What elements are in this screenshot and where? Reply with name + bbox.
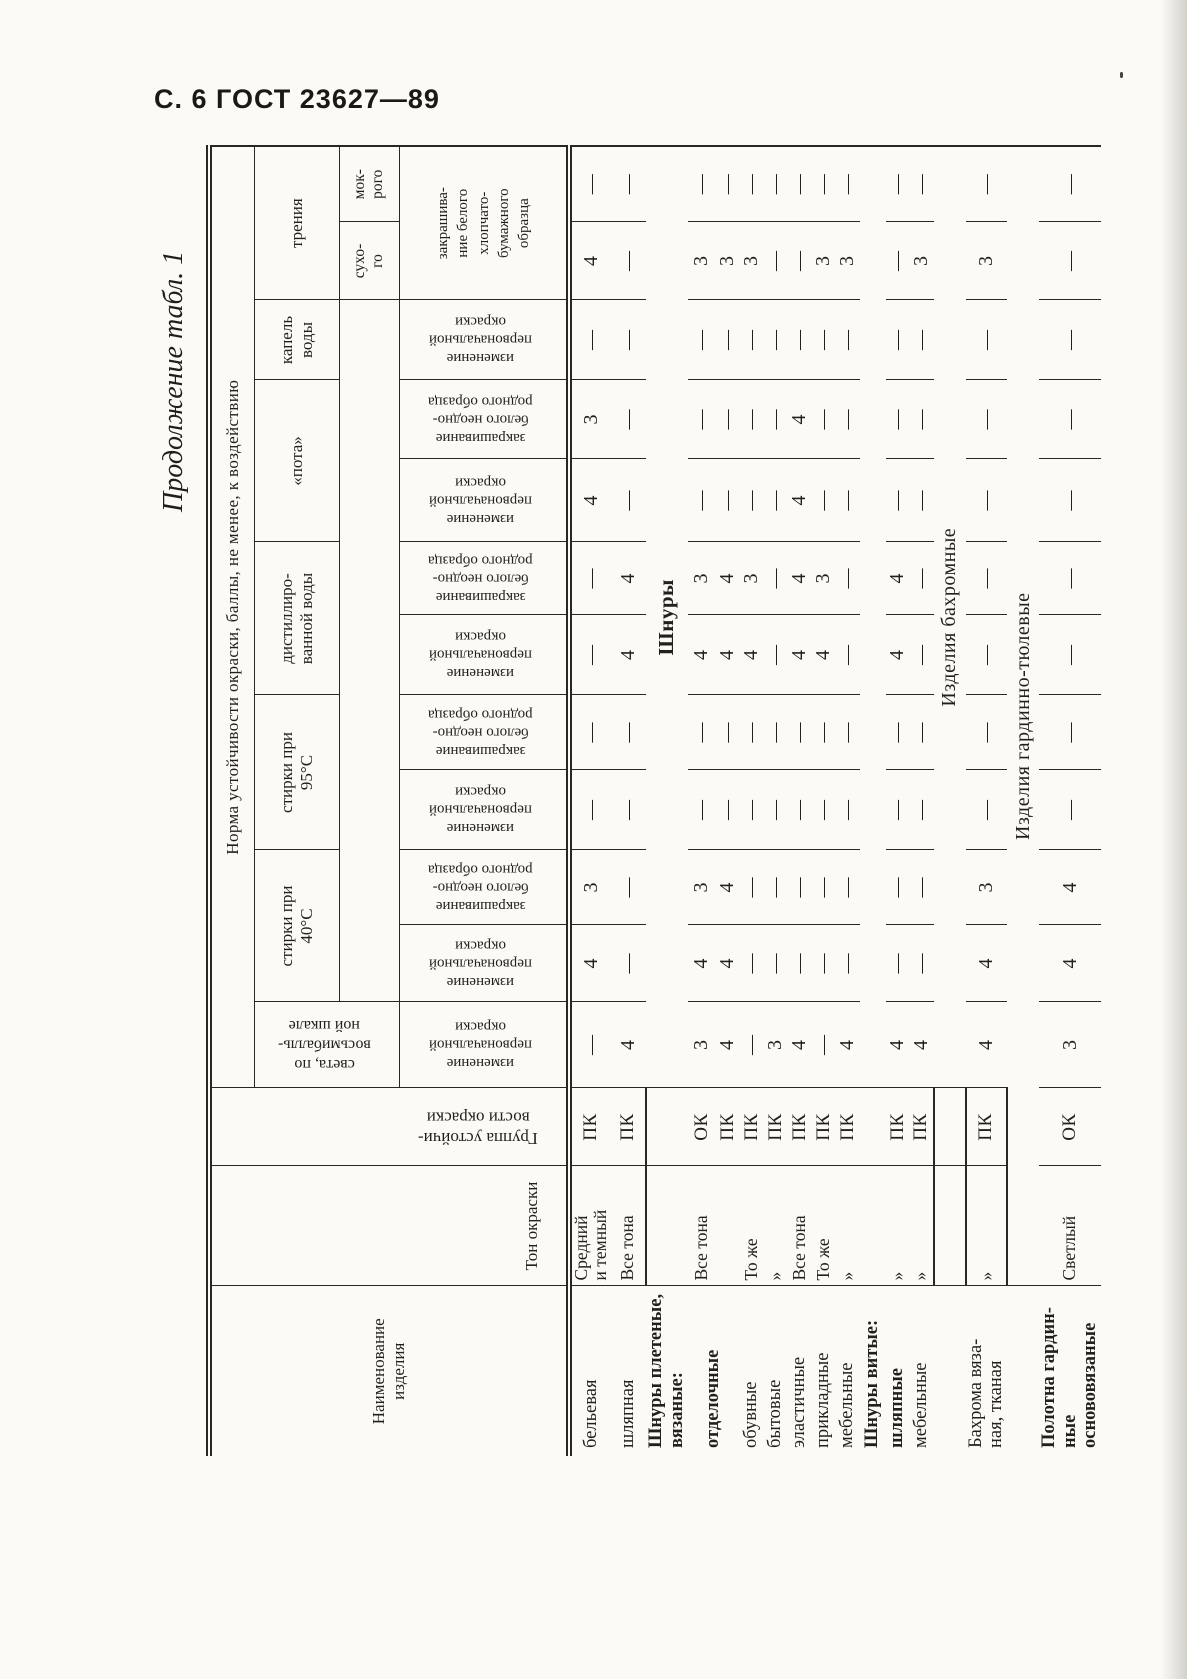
table-row: шляпнаяВсе тонаПК4————44————— <box>611 146 646 1456</box>
value-cell: — <box>740 380 764 459</box>
value-cell: — <box>836 925 860 1002</box>
value-cell: 3 <box>740 222 764 300</box>
group-cell: ПК <box>836 1088 860 1166</box>
value-cell: 4 <box>688 925 716 1002</box>
group-cell: ПК <box>764 1088 788 1166</box>
section-span-cell: Шнуры <box>646 146 688 1088</box>
value-cell: — <box>886 459 910 542</box>
value-cell: — <box>836 695 860 770</box>
col-header-product-name: Наименование изделия <box>209 1286 569 1456</box>
value-cell: — <box>836 615 860 695</box>
value-cell: — <box>611 925 646 1002</box>
sub-header-wash95-change: изменение первоначальной окраски <box>399 770 569 850</box>
value-cell: 4 <box>966 925 1007 1002</box>
value-cell: — <box>569 300 611 380</box>
product-name-cell: Бахрома вяза- ная, тканая <box>966 1286 1007 1456</box>
value-cell: — <box>740 300 764 380</box>
value-cell: — <box>569 770 611 850</box>
product-name-cell: мебельные <box>910 1286 934 1456</box>
col-header-fastness-group: Группа устойчи- вости окраски <box>209 1088 569 1166</box>
value-cell: — <box>611 146 646 222</box>
group-cell: ПК <box>788 1088 812 1166</box>
value-cell: — <box>788 925 812 1002</box>
empty-span-cell <box>860 146 886 1088</box>
value-cell: — <box>886 695 910 770</box>
tone-cell: » <box>910 1166 934 1286</box>
tone-cell-empty <box>646 1166 688 1286</box>
value-cell: — <box>788 850 812 925</box>
table-row: мебельные»ПК4—————————3— <box>910 146 934 1456</box>
group-header-wash40: стирки при 40°С <box>254 850 339 1002</box>
tone-cell: » <box>886 1166 910 1286</box>
value-cell: — <box>812 146 836 222</box>
value-cell: 4 <box>812 615 836 695</box>
value-cell: — <box>611 300 646 380</box>
value-cell: — <box>611 380 646 459</box>
product-name-cell: бельевая <box>569 1286 611 1456</box>
product-name-cell: Полотна гардин- ные основовязаные <box>1039 1286 1101 1456</box>
value-cell: — <box>836 542 860 615</box>
value-cell: — <box>764 459 788 542</box>
value-cell: 4 <box>1039 850 1101 925</box>
table-row: эластичныеВсе тонаПК4————4444——— <box>788 146 812 1456</box>
tone-cell: » <box>966 1166 1007 1286</box>
sub-header-sweat-change: изменение первоначальной окраски <box>399 459 569 542</box>
value-cell: 4 <box>611 615 646 695</box>
value-cell: — <box>812 695 836 770</box>
value-cell: — <box>886 300 910 380</box>
value-cell: — <box>716 695 740 770</box>
value-cell: — <box>1039 695 1101 770</box>
five-point-scale-header <box>339 300 399 1002</box>
value-cell: — <box>740 1002 764 1088</box>
value-cell: — <box>716 146 740 222</box>
value-cell: — <box>910 542 934 615</box>
group-cell: ПК <box>886 1088 910 1166</box>
value-cell: 4 <box>788 459 812 542</box>
group-cell: ПК <box>740 1088 764 1166</box>
value-cell: 4 <box>886 542 910 615</box>
value-cell: — <box>688 300 716 380</box>
value-cell: — <box>764 770 788 850</box>
value-cell: 3 <box>569 380 611 459</box>
table-row: прикладныеТо жеПК—————43———3— <box>812 146 836 1456</box>
value-cell: — <box>910 770 934 850</box>
value-cell: 3 <box>966 850 1007 925</box>
light-label: света, по восьмибалль- ной шкале <box>278 1016 371 1075</box>
group-header-wash95: стирки при 95°С <box>254 695 339 850</box>
value-cell: — <box>788 770 812 850</box>
value-cell: 3 <box>569 850 611 925</box>
value-cell: — <box>886 770 910 850</box>
value-cell: 3 <box>1039 1002 1101 1088</box>
stain-label: закрашивание белого неодно- родного обра… <box>428 392 533 447</box>
value-cell: 3 <box>910 222 934 300</box>
value-cell: 4 <box>886 1002 910 1088</box>
value-cell: 3 <box>688 1002 716 1088</box>
group-header-friction: трения <box>254 146 339 300</box>
value-cell: — <box>788 300 812 380</box>
value-cell: 4 <box>611 1002 646 1088</box>
friction-dry-header: сухо- го <box>339 222 399 300</box>
sub-header-sweat-stain: закрашивание белого неодно- родного обра… <box>399 380 569 459</box>
tone-cell: » <box>836 1166 860 1286</box>
value-cell: 4 <box>569 459 611 542</box>
value-cell: — <box>886 925 910 1002</box>
change-label: изменение первоначальной окраски <box>429 313 532 368</box>
value-cell: — <box>966 770 1007 850</box>
tone-cell-empty <box>934 1166 966 1286</box>
value-cell: — <box>611 850 646 925</box>
value-cell: — <box>910 850 934 925</box>
value-cell: — <box>812 925 836 1002</box>
stain-label: закрашивание белого неодно- родного обра… <box>428 860 533 915</box>
table-row: ПК444——44———3— <box>716 146 740 1456</box>
value-cell: — <box>966 380 1007 459</box>
sub-header-light-change: изменение первоначальной окраски <box>399 1002 569 1088</box>
section-row: Шнуры витые: <box>860 146 886 1456</box>
change-label: изменение первоначальной окраски <box>429 628 532 683</box>
tone-cell: » <box>764 1166 788 1286</box>
rotated-table-wrapper: Наименование изделия Тон окраски Группа … <box>206 145 1101 1456</box>
value-cell: — <box>688 695 716 770</box>
value-cell: — <box>836 850 860 925</box>
group-cell-empty <box>646 1088 688 1166</box>
value-cell: — <box>966 300 1007 380</box>
value-cell: 4 <box>716 925 740 1002</box>
value-cell: 4 <box>966 1002 1007 1088</box>
stain-label: закрашивание белого неодно- родного обра… <box>428 705 533 760</box>
value-cell: — <box>886 146 910 222</box>
value-cell: 4 <box>716 1002 740 1088</box>
value-cell: — <box>836 300 860 380</box>
table-row: мебельные»ПК4—————————3— <box>836 146 860 1456</box>
value-cell: 3 <box>812 222 836 300</box>
value-cell: 4 <box>788 380 812 459</box>
value-cell: — <box>569 695 611 770</box>
table-row: бытовые»ПК3——————————— <box>764 146 788 1456</box>
value-cell: — <box>910 146 934 222</box>
product-name-cell-empty <box>1007 1286 1039 1456</box>
value-cell: 4 <box>836 1002 860 1088</box>
table-row: шляпные»ПК4————44————— <box>886 146 910 1456</box>
value-cell: — <box>812 850 836 925</box>
product-name-cell: шляпная <box>611 1286 646 1456</box>
tone-cell: То же <box>740 1166 764 1286</box>
value-cell: 4 <box>716 615 740 695</box>
value-cell: — <box>788 146 812 222</box>
page-header: С. 6 ГОСТ 23627—89 <box>154 84 440 115</box>
value-cell: — <box>910 459 934 542</box>
value-cell: 4 <box>569 222 611 300</box>
value-cell: 3 <box>688 850 716 925</box>
group-cell: ПК <box>910 1088 934 1166</box>
sub-header-wash40-stain: закрашивание белого неодно- родного обра… <box>399 850 569 925</box>
value-cell: 3 <box>812 542 836 615</box>
value-cell: — <box>764 222 788 300</box>
group-cell: ПК <box>569 1088 611 1166</box>
value-cell: 3 <box>716 222 740 300</box>
section-row: Изделия гардинно-тюлевые <box>1007 146 1039 1456</box>
section-title-cell: Шнуры витые: <box>860 1286 886 1456</box>
group-header-sweat: «пота» <box>254 380 339 542</box>
value-cell: — <box>688 770 716 850</box>
value-cell: — <box>716 380 740 459</box>
value-cell: 4 <box>740 615 764 695</box>
value-cell: — <box>1039 380 1101 459</box>
gost-norms-table: Наименование изделия Тон окраски Группа … <box>206 145 1101 1456</box>
tone-cell: Все тона <box>788 1166 812 1286</box>
change-label: изменение первоначальной окраски <box>429 783 532 838</box>
value-cell: — <box>836 146 860 222</box>
value-cell: — <box>886 380 910 459</box>
value-cell: — <box>569 146 611 222</box>
value-cell: 4 <box>716 850 740 925</box>
value-cell: — <box>764 850 788 925</box>
value-cell: — <box>966 615 1007 695</box>
group-cell: ПК <box>812 1088 836 1166</box>
value-cell: — <box>886 850 910 925</box>
table-row: обувныеТо жеПК—————43———3— <box>740 146 764 1456</box>
value-cell: — <box>1039 222 1101 300</box>
col-header-norm: Норма устойчивости окраски, баллы, не ме… <box>209 146 254 1088</box>
tone-cell: То же <box>812 1166 836 1286</box>
value-cell: — <box>836 770 860 850</box>
col-header-tone: Тон окраски <box>209 1166 569 1286</box>
value-cell: — <box>1039 542 1101 615</box>
product-name-cell: мебельные <box>836 1286 860 1456</box>
value-cell: — <box>1039 770 1101 850</box>
tone-cell: Средний и темный <box>569 1166 611 1286</box>
value-cell: — <box>716 300 740 380</box>
value-cell: 3 <box>836 222 860 300</box>
value-cell: — <box>910 380 934 459</box>
group-cell: ОК <box>1039 1088 1101 1166</box>
value-cell: — <box>836 459 860 542</box>
value-cell: 4 <box>788 615 812 695</box>
value-cell: — <box>764 695 788 770</box>
group-header-water-drops: капель воды <box>254 300 339 380</box>
value-cell: — <box>910 695 934 770</box>
scan-speck <box>1120 72 1123 78</box>
product-name-cell: прикладные <box>812 1286 836 1456</box>
value-cell: — <box>611 695 646 770</box>
tone-cell: Светлый <box>1039 1166 1101 1286</box>
value-cell: — <box>569 1002 611 1088</box>
value-cell: 4 <box>788 542 812 615</box>
tone-cell <box>716 1166 740 1286</box>
value-cell: 3 <box>966 222 1007 300</box>
value-cell: — <box>740 459 764 542</box>
value-cell: — <box>966 695 1007 770</box>
section-row: Шнуры плетеные, вязаные:Шнуры <box>646 146 688 1456</box>
value-cell: 4 <box>688 615 716 695</box>
value-cell: 4 <box>611 542 646 615</box>
value-cell: — <box>812 459 836 542</box>
value-cell: — <box>764 542 788 615</box>
sub-header-drops-change: изменение первоначальной окраски <box>399 300 569 380</box>
value-cell: — <box>716 459 740 542</box>
table-row: отделочныеВсе тонаОК343——43———3— <box>688 146 716 1456</box>
section-title-cell: Шнуры плетеные, вязаные: <box>646 1286 688 1456</box>
value-cell: — <box>569 615 611 695</box>
section-row: Изделия бахромные <box>934 146 966 1456</box>
scan-edge-shadow <box>1161 0 1187 1679</box>
sub-header-wash95-stain: закрашивание белого неодно- родного обра… <box>399 695 569 770</box>
table-continuation-label: Продолжение табл. 1 <box>158 251 190 512</box>
value-cell: — <box>1039 300 1101 380</box>
section-span-cell: Изделия гардинно-тюлевые <box>1007 146 1039 1286</box>
fastness-group-label: Группа устойчи- вости окраски <box>418 1106 538 1147</box>
table-row: бельеваяСредний и темныйПК—43————43—4— <box>569 146 611 1456</box>
product-name-cell: бытовые <box>764 1286 788 1456</box>
value-cell: — <box>836 380 860 459</box>
value-cell: — <box>812 770 836 850</box>
group-cell-empty <box>860 1088 886 1166</box>
table-row: Бахрома вяза- ная, тканая»ПК443———————3— <box>966 146 1007 1456</box>
value-cell: — <box>764 925 788 1002</box>
product-name-cell: отделочные <box>688 1286 740 1456</box>
scanned-page: С. 6 ГОСТ 23627—89 Продолжение табл. 1 Н… <box>0 0 1187 1679</box>
tone-cell-empty <box>860 1166 886 1286</box>
value-cell: 4 <box>788 1002 812 1088</box>
value-cell: — <box>966 459 1007 542</box>
value-cell: — <box>611 222 646 300</box>
change-label: изменение первоначальной окраски <box>429 473 532 528</box>
group-cell: ПК <box>716 1088 740 1166</box>
group-cell: ПК <box>966 1088 1007 1166</box>
value-cell: — <box>1039 459 1101 542</box>
value-cell: 4 <box>910 1002 934 1088</box>
value-cell: — <box>910 615 934 695</box>
value-cell: — <box>688 146 716 222</box>
table-row: Полотна гардин- ные основовязаныеСветлый… <box>1039 146 1101 1456</box>
value-cell: 3 <box>688 542 716 615</box>
friction-wet-header: мок- рого <box>339 146 399 222</box>
value-cell: — <box>740 925 764 1002</box>
product-name-cell: шляпные <box>886 1286 910 1456</box>
change-label: изменение первоначальной окраски <box>429 1018 532 1073</box>
value-cell: — <box>764 380 788 459</box>
value-cell: — <box>740 695 764 770</box>
value-cell: — <box>764 146 788 222</box>
tone-cell: Все тона <box>611 1166 646 1286</box>
group-cell: ОК <box>688 1088 716 1166</box>
group-cell: ПК <box>611 1088 646 1166</box>
value-cell: — <box>688 459 716 542</box>
value-cell: — <box>788 695 812 770</box>
product-name-cell: эластичные <box>788 1286 812 1456</box>
value-cell: — <box>740 146 764 222</box>
value-cell: — <box>910 300 934 380</box>
value-cell: — <box>764 300 788 380</box>
tone-cell: Все тона <box>688 1166 716 1286</box>
value-cell: — <box>688 380 716 459</box>
value-cell: — <box>716 770 740 850</box>
sub-header-dist-change: изменение первоначальной окраски <box>399 615 569 695</box>
value-cell: — <box>1039 615 1101 695</box>
stain-cotton-label: закрашива- ние белого хлопчато- бумажног… <box>435 187 532 259</box>
value-cell: 3 <box>688 222 716 300</box>
value-cell: — <box>611 770 646 850</box>
value-cell: 3 <box>740 542 764 615</box>
group-header-light: света, по восьмибалль- ной шкале <box>254 1002 399 1088</box>
value-cell: 4 <box>716 542 740 615</box>
value-cell: — <box>812 1002 836 1088</box>
value-cell: 3 <box>764 1002 788 1088</box>
value-cell: — <box>966 146 1007 222</box>
product-name-cell-empty <box>934 1286 966 1456</box>
value-cell: 4 <box>569 925 611 1002</box>
value-cell: — <box>886 222 910 300</box>
value-cell: — <box>788 222 812 300</box>
value-cell: — <box>966 542 1007 615</box>
sub-header-dist-stain: закрашивание белого неодно- родного обра… <box>399 542 569 615</box>
value-cell: — <box>812 300 836 380</box>
sub-header-wash40-change: изменение первоначальной окраски <box>399 925 569 1002</box>
product-name-cell: обувные <box>740 1286 764 1456</box>
value-cell: — <box>1039 146 1101 222</box>
stain-label: закрашивание белого неодно- родного обра… <box>428 551 533 606</box>
group-cell-empty <box>934 1088 966 1166</box>
value-cell: — <box>569 542 611 615</box>
sub-header-friction-stain-cotton: закрашива- ние белого хлопчато- бумажног… <box>399 146 569 300</box>
section-span-cell: Изделия бахромные <box>934 146 966 1088</box>
value-cell: — <box>764 615 788 695</box>
value-cell: — <box>611 459 646 542</box>
value-cell: — <box>740 770 764 850</box>
value-cell: — <box>740 850 764 925</box>
value-cell: 4 <box>886 615 910 695</box>
value-cell: 4 <box>1039 925 1101 1002</box>
change-label: изменение первоначальной окраски <box>429 936 532 991</box>
value-cell: — <box>910 925 934 1002</box>
value-cell: — <box>812 380 836 459</box>
group-header-distilled-water: дистиллиро- ванной воды <box>254 542 339 695</box>
